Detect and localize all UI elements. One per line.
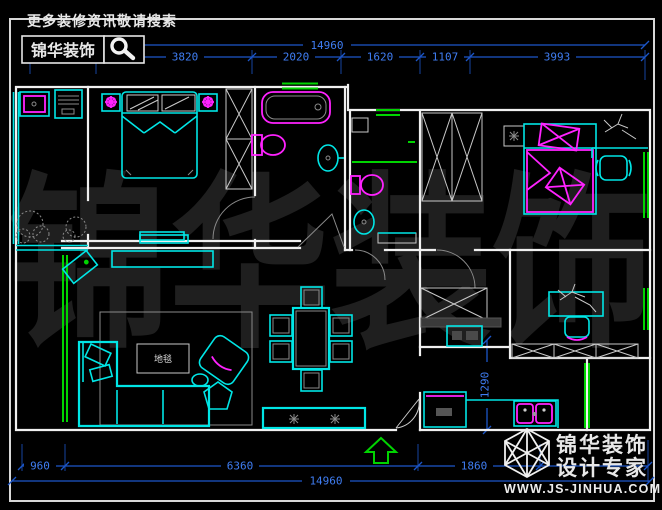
dim-seg-6: 3993 <box>544 51 571 64</box>
nightstand-2-flower <box>509 131 519 141</box>
dim-bottom-3: 1860 <box>461 460 488 473</box>
coffee-table-label: 地毯 <box>154 353 172 364</box>
footer-logo: 锦华装饰 设计专家 WWW.JS-JINHUA.COM <box>504 429 661 496</box>
dim-bottom-2: 6360 <box>227 460 254 473</box>
dim-kitchen: 1290 <box>479 372 492 399</box>
dim-seg-2: 3820 <box>172 51 199 64</box>
footer-brand: 锦华装饰 <box>556 433 648 457</box>
dim-bottom-total: 14960 <box>309 475 342 488</box>
dim-seg-3: 2020 <box>283 51 310 64</box>
header-tagline: 更多装修资讯敬请搜索 <box>27 13 177 29</box>
floorplan-screenshot: 锦华装饰 14960 1560 3820 2020 1620 1107 3993 <box>0 0 662 510</box>
fridge-handle <box>436 408 452 416</box>
brand-box: 锦华装饰 <box>22 36 104 63</box>
floorplan-canvas: 锦华装饰 14960 1560 3820 2020 1620 1107 3993 <box>0 0 662 510</box>
brand-name: 锦华装饰 <box>31 41 95 60</box>
search-box <box>104 36 144 63</box>
sideboard-star-1 <box>289 414 299 424</box>
dim-top-total: 14960 <box>310 39 343 52</box>
sideboard-star-2 <box>330 414 340 424</box>
footer-subtitle: 设计专家 <box>556 456 648 480</box>
dim-seg-4: 1620 <box>367 51 394 64</box>
footer-website: WWW.JS-JINHUA.COM <box>504 482 661 496</box>
dim-seg-5: 1107 <box>432 51 459 64</box>
dim-bottom-1: 960 <box>30 460 50 473</box>
